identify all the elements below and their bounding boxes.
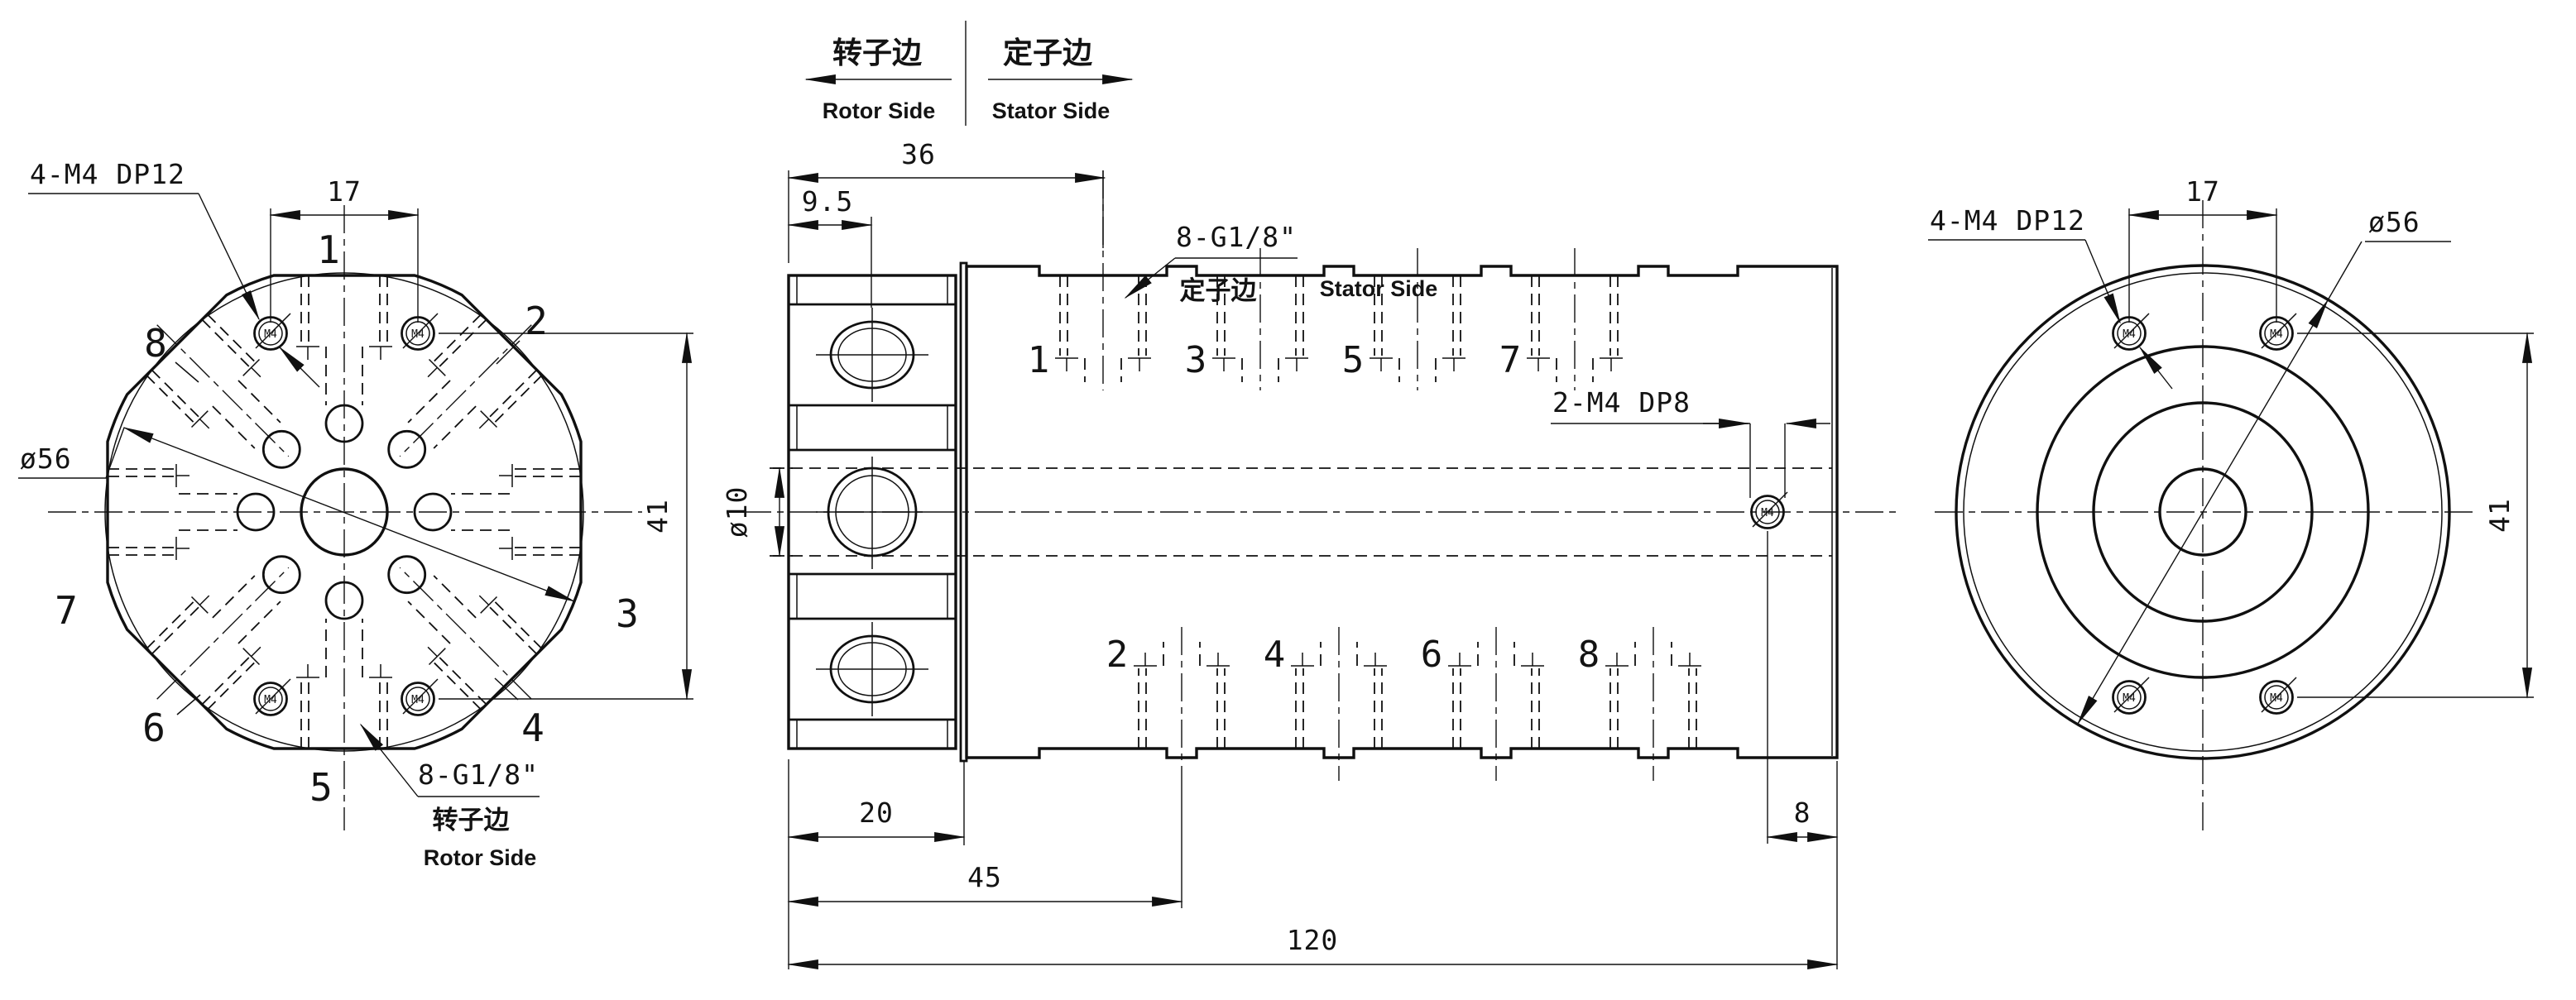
side-m4-hole: M4 <box>1752 492 1788 844</box>
m4-hole: M4 <box>2113 677 2150 714</box>
header-rotor-cn: 转子边 <box>832 36 922 69</box>
svg-text:M4: M4 <box>2270 328 2283 341</box>
port-label-7: 7 <box>55 588 78 633</box>
svg-text:M4: M4 <box>2123 328 2136 341</box>
svg-text:17: 17 <box>327 175 362 208</box>
m4-hole: M4 <box>402 313 439 350</box>
header-stator-en: Stator Side <box>992 98 1111 123</box>
port-label-5: 5 <box>309 765 333 810</box>
svg-text:3: 3 <box>1185 339 1207 381</box>
dim-45: 45 <box>789 781 1182 908</box>
header-rotor-en: Rotor Side <box>823 98 936 123</box>
svg-text:20: 20 <box>859 797 894 829</box>
port-label-8: 8 <box>144 321 167 366</box>
stator-side-cn: 定子边 <box>1180 276 1258 305</box>
svg-text:8: 8 <box>1794 797 1811 829</box>
svg-text:6: 6 <box>1421 634 1443 676</box>
svg-text:ø10: ø10 <box>721 486 753 538</box>
port-label-2: 2 <box>525 299 548 343</box>
left-view-centerlines <box>48 205 642 830</box>
rotor-side-cn: 转子边 <box>433 806 511 835</box>
dim-8: 8 <box>1768 761 1837 969</box>
svg-text:8: 8 <box>1578 634 1600 676</box>
port-channel-1 <box>296 275 392 405</box>
rotor-side-en: Rotor Side <box>424 845 537 870</box>
stator-m4-holes: M4 M4 M4 M4 <box>2113 313 2297 714</box>
svg-text:41: 41 <box>641 499 674 533</box>
svg-text:5: 5 <box>1342 339 1365 381</box>
m4-hole: M4 <box>2261 677 2297 714</box>
port-label-6: 6 <box>142 706 165 750</box>
port-label-1: 1 <box>317 227 340 272</box>
svg-text:M4: M4 <box>411 694 425 706</box>
drawing-canvas: 转子边 定子边 Rotor Side Stator Side <box>0 0 2576 1000</box>
svg-text:2: 2 <box>1106 634 1129 676</box>
svg-text:M4: M4 <box>411 328 425 341</box>
stator-port-spec: 8-G1/8" 定子边 Stator Side <box>1125 221 1437 305</box>
svg-text:9.5: 9.5 <box>802 185 854 218</box>
svg-text:17: 17 <box>2185 175 2220 208</box>
left-dim-41: 41 <box>439 333 693 699</box>
svg-text:4-M4 DP12: 4-M4 DP12 <box>1930 204 2085 237</box>
m4-hole: M4 <box>402 679 439 715</box>
svg-text:41: 41 <box>2483 498 2516 533</box>
left-port-numbers: 1 2 3 4 5 6 7 8 <box>55 227 639 810</box>
rotary-union-drawing: 转子边 定子边 Rotor Side Stator Side <box>0 0 2576 1000</box>
middle-view-side: 1 3 5 7 <box>721 138 1897 969</box>
svg-text:ø56: ø56 <box>20 443 72 475</box>
top-port-3: 3 <box>1185 248 1308 390</box>
dim-120: 120 <box>789 924 1837 964</box>
right-view-stator-face: M4 M4 M4 M4 17 <box>1928 175 2534 830</box>
dim-9p5: 9.5 <box>789 185 871 308</box>
right-view-centerlines <box>1935 200 2474 830</box>
svg-text:M4: M4 <box>2270 692 2283 705</box>
top-port-7: 7 <box>1499 248 1623 390</box>
left-view-rotor-face: M4 M4 M4 M4 1 2 3 4 5 <box>18 158 693 870</box>
top-port-5: 5 <box>1342 248 1465 390</box>
header-stator-cn: 定子边 <box>1003 36 1092 69</box>
stator-side-en: Stator Side <box>1320 276 1438 301</box>
svg-text:1: 1 <box>1028 339 1050 381</box>
svg-text:4-M4 DP12: 4-M4 DP12 <box>30 158 185 190</box>
port-label-4: 4 <box>521 706 544 750</box>
svg-text:M4: M4 <box>1761 507 1774 519</box>
svg-text:45: 45 <box>967 861 1002 893</box>
header-legend: 转子边 定子边 Rotor Side Stator Side <box>806 21 1132 126</box>
m4-hole: M4 <box>2261 313 2297 350</box>
m4-hole: M4 <box>255 679 291 715</box>
svg-text:8-G1/8": 8-G1/8" <box>418 758 539 791</box>
svg-text:8-G1/8": 8-G1/8" <box>1176 221 1297 253</box>
left-dia56-callout: ø56 <box>18 428 574 601</box>
top-port-1: 1 <box>1028 170 1151 390</box>
flange-port-centerlines <box>816 308 928 716</box>
dim-20: 20 <box>789 759 964 969</box>
port-label-3: 3 <box>616 591 639 636</box>
port-label-ticks <box>175 341 520 715</box>
svg-text:4: 4 <box>1264 634 1286 676</box>
svg-text:36: 36 <box>901 138 936 170</box>
svg-text:M4: M4 <box>264 694 277 706</box>
side-m4-callout: 2-M4 DP8 <box>1551 386 1830 498</box>
svg-text:M4: M4 <box>264 328 277 341</box>
left-m4-callout: 4-M4 DP12 <box>28 158 319 387</box>
svg-text:2-M4 DP8: 2-M4 DP8 <box>1552 386 1691 419</box>
svg-text:ø56: ø56 <box>2368 206 2420 238</box>
svg-text:7: 7 <box>1499 339 1522 381</box>
svg-text:M4: M4 <box>2123 692 2136 705</box>
port-channel-7 <box>108 464 237 560</box>
rotor-m4-holes: M4 M4 M4 M4 <box>255 313 439 715</box>
m4-hole: M4 <box>255 313 291 350</box>
svg-text:120: 120 <box>1287 924 1339 956</box>
